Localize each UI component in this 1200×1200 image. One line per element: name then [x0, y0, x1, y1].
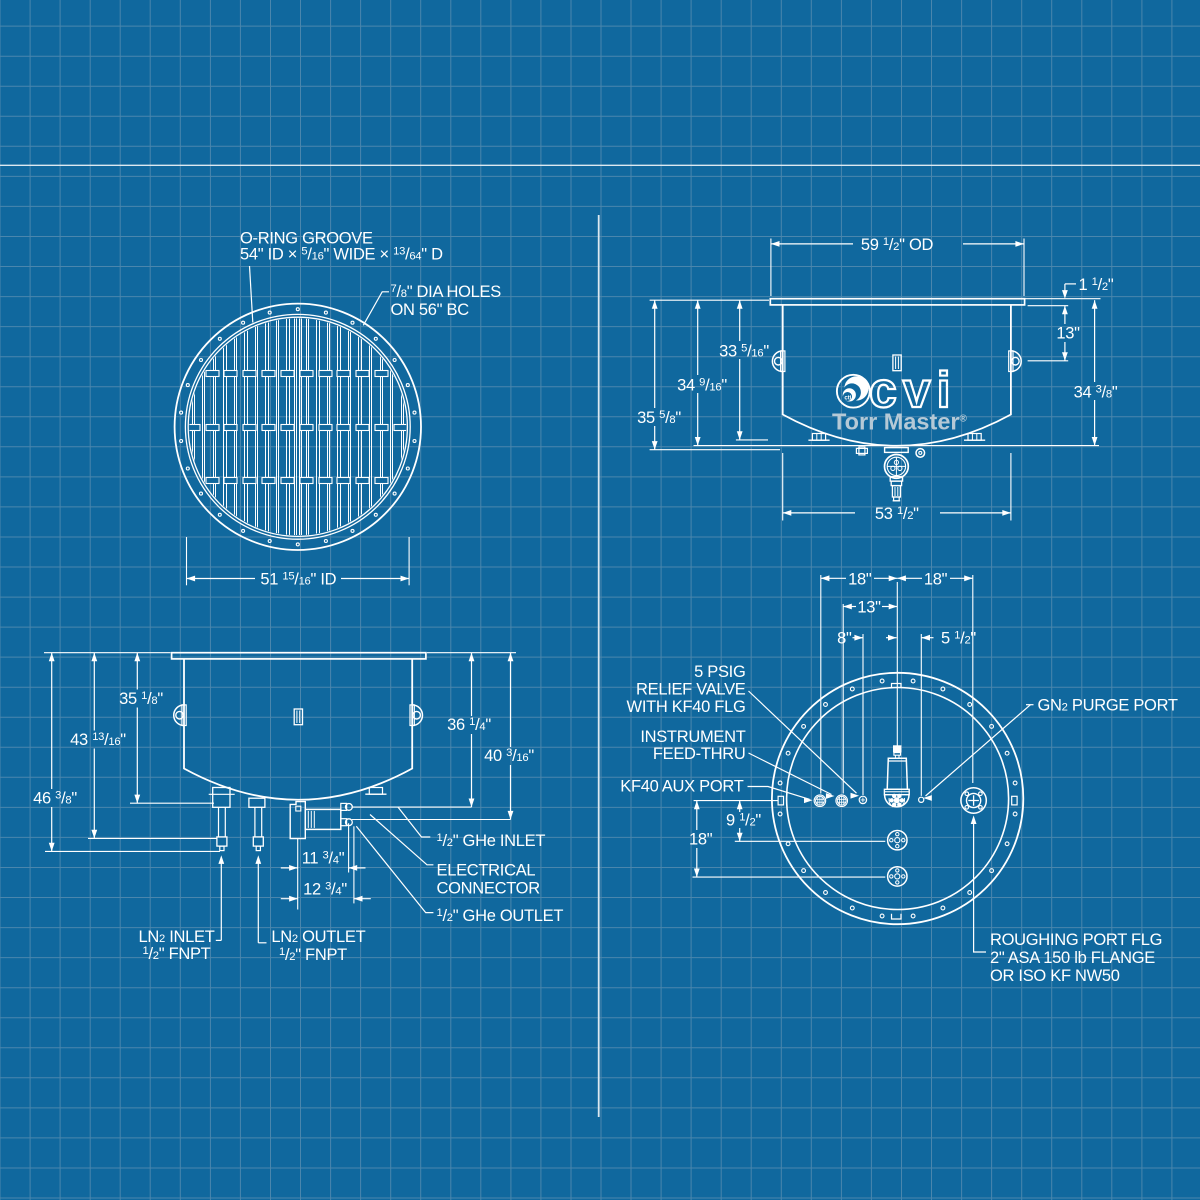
svg-text:5 PSIG: 5 PSIG — [694, 663, 745, 681]
svg-text:51 15/16" ID: 51 15/16" ID — [260, 571, 336, 589]
svg-text:18": 18" — [924, 570, 948, 588]
svg-text:1/2" FNPT: 1/2" FNPT — [143, 945, 211, 963]
svg-text:1/2" FNPT: 1/2" FNPT — [279, 946, 347, 964]
svg-text:WITH KF40 FLG: WITH KF40 FLG — [627, 698, 746, 716]
svg-text:CONNECTOR: CONNECTOR — [437, 880, 541, 898]
svg-text:13": 13" — [1056, 325, 1080, 343]
svg-text:18": 18" — [689, 831, 713, 849]
svg-text:ELECTRICAL: ELECTRICAL — [437, 862, 536, 880]
svg-text:1/2" GHe INLET: 1/2" GHe INLET — [437, 832, 546, 850]
svg-text:cti: cti — [844, 395, 851, 401]
svg-text:ON 56" BC: ON 56" BC — [391, 301, 470, 319]
svg-text:GN2 PURGE PORT: GN2 PURGE PORT — [1038, 697, 1178, 715]
svg-text:INSTRUMENT: INSTRUMENT — [640, 728, 745, 746]
svg-text:LN2 OUTLET: LN2 OUTLET — [271, 928, 365, 946]
svg-text:2" ASA 150 lb FLANGE: 2" ASA 150 lb FLANGE — [990, 949, 1155, 967]
svg-text:Torr Master®: Torr Master® — [832, 409, 968, 435]
svg-text:8": 8" — [837, 630, 852, 648]
svg-text:RELIEF VALVE: RELIEF VALVE — [636, 681, 746, 699]
svg-text:LN2 INLET: LN2 INLET — [139, 928, 215, 946]
svg-text:13": 13" — [857, 599, 881, 617]
svg-text:KF40 AUX PORT: KF40 AUX PORT — [620, 778, 743, 796]
svg-text:FEED-THRU: FEED-THRU — [653, 745, 746, 763]
svg-text:1/2" GHe OUTLET: 1/2" GHe OUTLET — [437, 907, 564, 925]
svg-text:7/8" DIA HOLES: 7/8" DIA HOLES — [391, 283, 502, 301]
svg-text:OR ISO KF NW50: OR ISO KF NW50 — [990, 967, 1120, 985]
svg-text:ROUGHING PORT FLG: ROUGHING PORT FLG — [990, 931, 1162, 949]
svg-text:18": 18" — [848, 570, 872, 588]
